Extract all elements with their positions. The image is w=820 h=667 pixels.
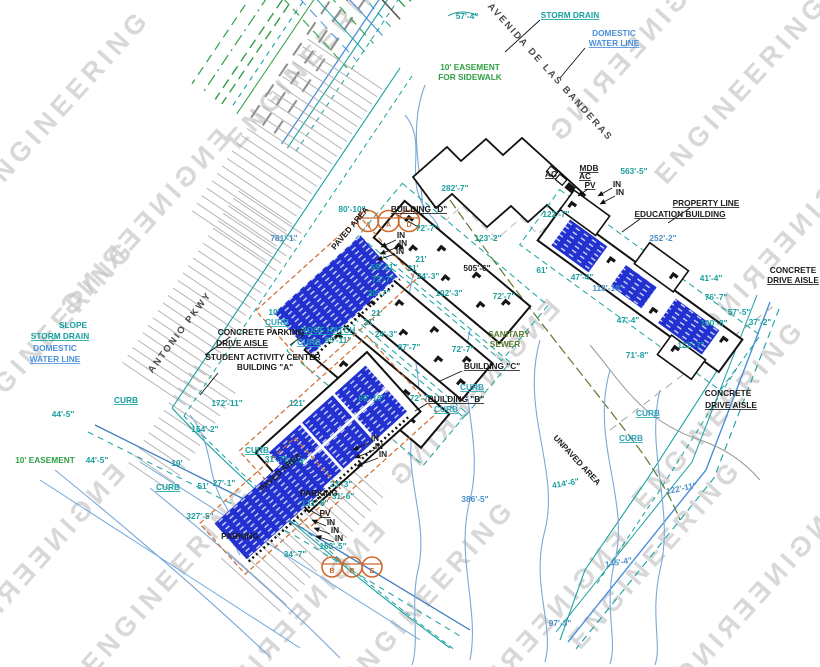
dim-24-3-b: 24'-3" <box>375 329 398 339</box>
label-curb-r1: CURB <box>636 408 660 418</box>
label-education-building: EDUCATION BUILDING <box>634 209 725 219</box>
dim-123-2: 123'-2" <box>474 233 501 243</box>
label-building-d: BUILDING "D" <box>391 204 447 214</box>
dim-95-11: 95'-11" <box>325 335 352 345</box>
tree-tag: E <box>370 568 375 575</box>
dim-57-5: 57'-5" <box>728 307 751 317</box>
dim-37-2: 37'-2" <box>749 317 772 327</box>
label-conc-drive2-2: DRIVE AISLE <box>705 400 757 410</box>
dim-24-3-a: 24'-3" <box>417 271 440 281</box>
dim-44-5-b: 44'-5" <box>86 455 109 465</box>
label-roof-hatch: ROOF HATCH <box>301 325 356 335</box>
label-sac-2: BUILDING "A" <box>237 362 293 372</box>
dim-20-7: 20'-7" <box>368 288 391 298</box>
watermark-text: ENGINEERING <box>649 0 820 190</box>
label-building-b: BUILDING "B" <box>428 394 484 404</box>
dim-72-7-e: 72'-7" <box>410 393 433 403</box>
label-drive-aisle: DRIVE AISLE <box>216 338 268 348</box>
dim-153-5: 153'-5" <box>319 541 346 551</box>
dim-57-4: 57'-4" <box>456 11 479 21</box>
dim-252-2: 252'-2" <box>649 233 676 243</box>
dim-97-3: 97'-3" <box>549 618 572 628</box>
dim-282-7: 282'-7" <box>441 183 468 193</box>
dim-327-5: 327'-5" <box>186 511 213 521</box>
label-curb-rh: CURB <box>297 337 321 347</box>
dim-122-7-b: 122'-7" <box>677 340 704 350</box>
label-conc-drive2-1: CONCRETE <box>705 388 752 398</box>
dim-47-4-b: 47'-4" <box>617 315 640 325</box>
dim-31-6: 31'-6" <box>332 491 355 501</box>
dim-118-10: 118'-10" <box>592 283 623 293</box>
label-pv-1: PV <box>584 180 596 190</box>
dim-122-7-a: 122'-7" <box>542 209 569 219</box>
dim-100-8: 100'-8" <box>700 318 727 328</box>
dim-44-5-a: 44'-5" <box>52 409 75 419</box>
dim-10-b: 10' <box>171 458 182 468</box>
label-conc-drive-r2: DRIVE AISLE <box>767 275 819 285</box>
label-slope-1: SLOPE <box>59 320 88 330</box>
dim-10-a: 10' <box>268 307 279 317</box>
dim-172-11: 172'-11" <box>211 398 242 408</box>
label-easement-left: 10' EASEMENT <box>15 455 75 465</box>
label-easement-sidewalk-2: FOR SIDEWALK <box>438 72 502 82</box>
dim-102-3: 102'-3" <box>435 288 462 298</box>
label-domestic-water-top-2: WATER LINE <box>589 38 640 48</box>
tree-tag: B <box>329 568 334 575</box>
dim-505-6: 505'-6" <box>463 263 490 273</box>
dim-69-10: 69'-10" <box>358 393 385 403</box>
dim-59-11: 59'-11" <box>371 262 398 272</box>
dim-414-6: 414'-6" <box>551 476 580 491</box>
label-sanitary-2: SEWER <box>490 339 520 349</box>
tree-tag: D <box>406 222 411 229</box>
dim-72-7-d: 72'-7" <box>452 344 475 354</box>
label-slope-2: STORM DRAIN <box>31 331 89 341</box>
label-sac-1: STUDENT ACTIVITY CENTER <box>205 352 320 362</box>
label-in-2c: IN <box>396 246 404 256</box>
label-curb-top: CURB <box>265 317 289 327</box>
dim-76-7: 76'-7" <box>705 292 728 302</box>
label-curb-r2: CURB <box>619 433 643 443</box>
label-conc-parking: CONCRETE PARKING <box>218 327 305 337</box>
label-in-4c: IN <box>379 449 387 459</box>
dim-121: 121' <box>289 398 305 408</box>
label-building-c: BUILDING "C" <box>464 361 520 371</box>
label-dwl-left-1: DOMESTIC <box>33 343 77 353</box>
label-property-line: PROPERTY LINE <box>673 198 740 208</box>
dim-51: 51' <box>197 481 208 491</box>
tree-tag: A <box>365 222 370 229</box>
watermark-text: ENGINEERING <box>0 3 156 204</box>
site-plan-page: ENGINEERING ENGINEERING ENGINEERING ENGI… <box>0 0 820 667</box>
dim-27-1: 27'-1" <box>213 478 236 488</box>
dim-87-7: 87'-7" <box>398 342 421 352</box>
dim-154-2: 154'-2" <box>191 424 218 434</box>
label-domestic-water-top-1: DOMESTIC <box>592 28 636 38</box>
label-sanitary-1: SANITARY <box>488 329 530 339</box>
watermark-text: ENGINEERING <box>691 143 820 344</box>
label-conc-drive-r1: CONCRETE <box>770 265 817 275</box>
label-in-1b: IN <box>616 187 624 197</box>
tree-tag: A <box>386 222 391 229</box>
dim-131-6: 131'-6" <box>301 498 328 508</box>
dim-563-5: 563'-5" <box>620 166 647 176</box>
label-curb-b: CURB <box>434 404 458 414</box>
dim-47-4-a: 47'-4" <box>571 272 594 282</box>
label-curb-left: CURB <box>114 395 138 405</box>
dim-34-7: 34'-7" <box>284 549 307 559</box>
label-parking-bl: PARKING <box>221 531 259 541</box>
label-easement-sidewalk-1: 10' EASEMENT <box>440 62 500 72</box>
dim-61: 61' <box>536 265 547 275</box>
label-curb-c: CURB <box>460 382 484 392</box>
dim-781-1: 781'-1" <box>270 233 297 243</box>
dim-71-8: 71'-8" <box>626 350 649 360</box>
dim-386-5: 386'-5" <box>461 494 488 504</box>
dim-72-7-c: 72'-7" <box>493 291 516 301</box>
label-curb-bl: CURB <box>156 482 180 492</box>
label-storm-drain-top: STORM DRAIN <box>541 10 599 20</box>
dim-41-4: 41'-4" <box>700 273 723 283</box>
label-ac-1: AC <box>545 169 557 179</box>
dim-21-d: 21' <box>363 317 374 327</box>
tree-tag: B <box>349 568 354 575</box>
dim-72-7-b: 72'-7" <box>372 274 395 284</box>
dim-72-7-a: 72'-7" <box>416 223 439 233</box>
label-dwl-left-2: WATER LINE <box>30 354 81 364</box>
site-plan-svg: ENGINEERING ENGINEERING ENGINEERING ENGI… <box>0 0 820 667</box>
